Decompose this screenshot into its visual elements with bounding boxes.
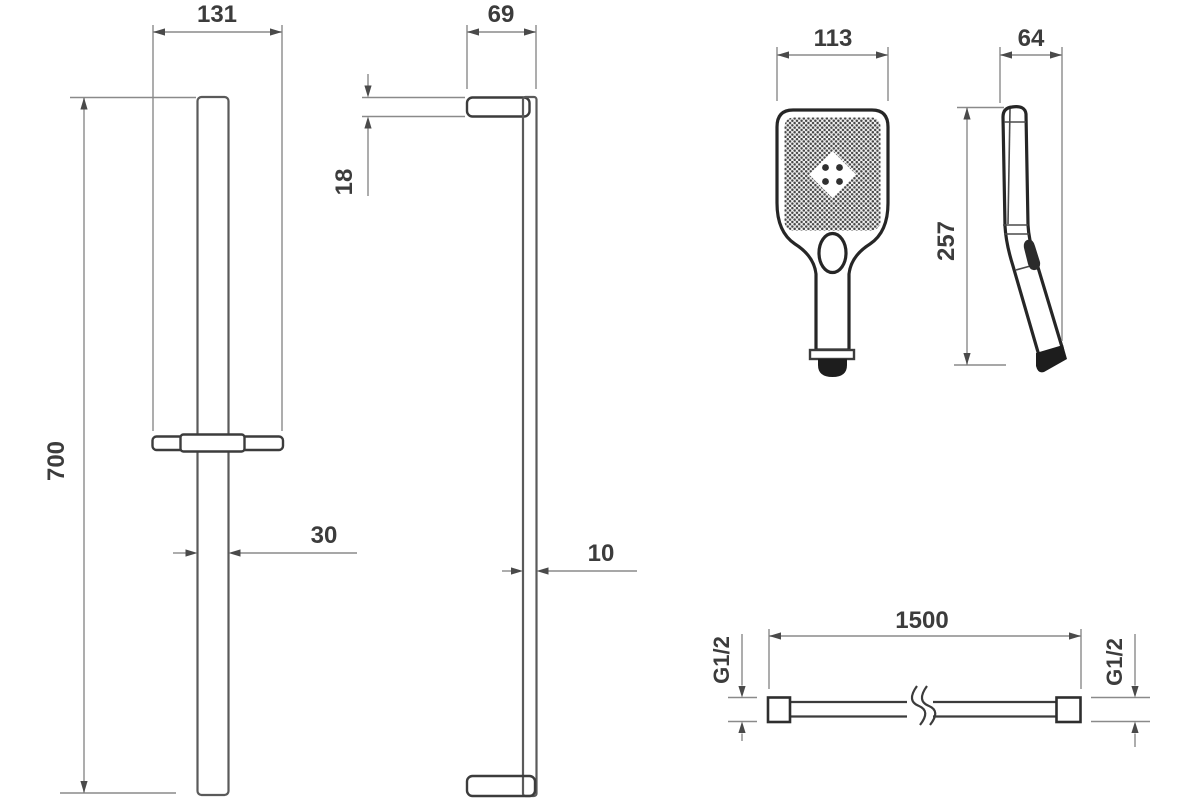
view-handset-front: 113 <box>777 25 888 377</box>
arrowhead <box>270 28 282 35</box>
dim-label-bracket-thickness: 18 <box>331 169 358 196</box>
nozzle-dot <box>836 178 843 185</box>
arrowhead <box>769 632 781 639</box>
arrowhead <box>153 28 165 35</box>
arrowhead <box>80 781 87 793</box>
rail-bar-side <box>523 97 537 796</box>
arrowhead <box>524 28 536 35</box>
dim-label-hose-length: 1500 <box>895 607 948 634</box>
dimension-113: 113 <box>777 25 888 101</box>
arrowhead <box>963 353 970 365</box>
nozzle-dot <box>822 164 829 171</box>
dimension-g12-right: G1/2 <box>1091 634 1150 747</box>
arrowhead <box>229 549 241 556</box>
arrowhead <box>80 98 87 110</box>
handle-flange <box>810 350 854 359</box>
dimension-257: 257 <box>933 108 1006 366</box>
view-handset-side: 64 257 <box>933 25 1067 372</box>
arrowhead <box>738 686 745 698</box>
view-hose: 1500 G1/2 G1/2 <box>709 607 1150 747</box>
wall-bracket-top <box>467 98 530 117</box>
hose-nut-front <box>818 359 847 377</box>
view-rail-side: 69 18 10 <box>331 1 637 796</box>
slider-body-front <box>181 435 245 452</box>
arrowhead <box>1050 51 1062 58</box>
dim-label-bracket-width: 131 <box>197 1 237 28</box>
dimension-69: 69 <box>467 1 536 89</box>
hose-fitting-right <box>1057 698 1081 723</box>
dimension-1500: 1500 <box>769 607 1081 689</box>
wall-bracket-bottom <box>467 776 535 796</box>
dimension-18: 18 <box>331 74 465 196</box>
hanging-hole <box>819 234 846 273</box>
dim-label-thread-left: G1/2 <box>709 636 734 684</box>
arrowhead <box>186 549 198 556</box>
dim-label-bar-depth: 10 <box>588 540 615 567</box>
view-rail-front: 131 700 30 <box>43 1 357 795</box>
handset-profile <box>1003 107 1063 359</box>
dim-label-handset-width: 113 <box>814 25 853 52</box>
arrowhead <box>876 51 888 58</box>
dim-label-thread-right: G1/2 <box>1102 638 1127 686</box>
arrowhead <box>364 86 371 98</box>
arrowhead <box>537 567 549 574</box>
arrowhead <box>1131 722 1138 734</box>
dim-label-depth: 69 <box>488 1 515 28</box>
arrowhead <box>1000 51 1012 58</box>
drawing-canvas: 131 700 30 <box>0 0 1200 800</box>
arrowhead <box>364 117 371 129</box>
nozzle-dot <box>822 178 829 185</box>
technical-drawing: 131 700 30 <box>0 0 1200 800</box>
arrowhead <box>1131 686 1138 698</box>
dim-label-handset-height: 257 <box>933 221 960 261</box>
arrowhead <box>777 51 789 58</box>
dim-label-handset-depth: 64 <box>1018 25 1045 52</box>
dim-label-rail-height: 700 <box>43 441 70 481</box>
nozzle-dot <box>836 164 843 171</box>
arrowhead <box>738 722 745 734</box>
dim-label-bar-width: 30 <box>311 522 338 549</box>
hose-fitting-left <box>768 698 790 723</box>
arrowhead <box>467 28 479 35</box>
arrowhead <box>1069 632 1081 639</box>
dimension-g12-left: G1/2 <box>709 634 757 741</box>
arrowhead <box>963 108 970 120</box>
arrowhead <box>511 567 523 574</box>
